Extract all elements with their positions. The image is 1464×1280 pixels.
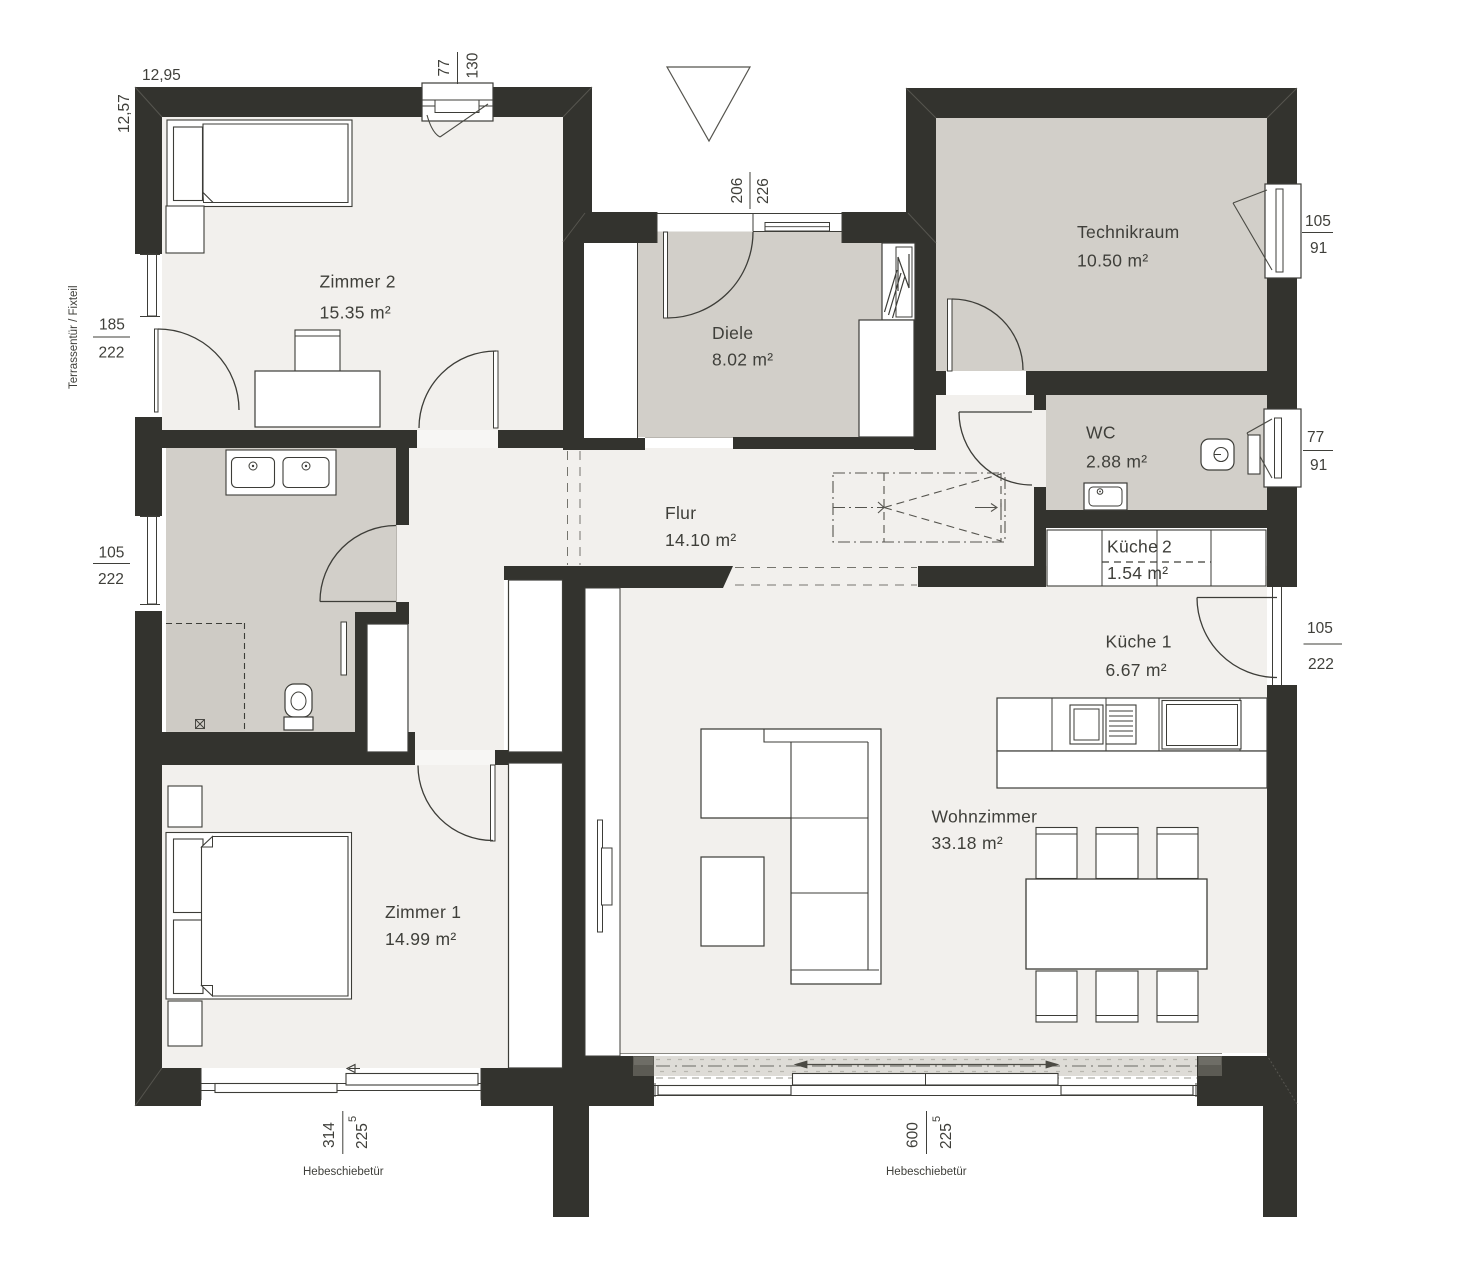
svg-text:130: 130: [465, 52, 482, 78]
svg-text:Hebeschiebetür: Hebeschiebetür: [886, 1166, 967, 1178]
svg-text:Zimmer 1: Zimmer 1: [385, 902, 461, 922]
svg-text:77: 77: [436, 59, 453, 76]
svg-text:5: 5: [347, 1116, 359, 1122]
svg-text:105: 105: [1307, 620, 1333, 637]
svg-text:10.50 m²: 10.50 m²: [1077, 251, 1148, 271]
svg-text:314: 314: [321, 1122, 338, 1148]
svg-text:Technikraum: Technikraum: [1077, 222, 1180, 242]
svg-text:226: 226: [755, 178, 772, 204]
svg-text:1.54 m²: 1.54 m²: [1107, 563, 1168, 583]
svg-text:14.99 m²: 14.99 m²: [385, 929, 456, 949]
svg-text:2: 2: [1162, 536, 1172, 556]
svg-text:Flur: Flur: [665, 503, 696, 523]
svg-text:WC: WC: [1086, 423, 1116, 443]
svg-text:77: 77: [1307, 429, 1324, 446]
svg-text:Diele: Diele: [712, 323, 753, 343]
svg-text:8.02 m²: 8.02 m²: [712, 350, 773, 370]
svg-text:15.35 m²: 15.35 m²: [320, 303, 391, 323]
svg-text:222: 222: [98, 571, 124, 588]
svg-text:Zimmer 2: Zimmer 2: [320, 272, 396, 292]
svg-text:91: 91: [1310, 240, 1327, 257]
svg-text:2.88 m²: 2.88 m²: [1086, 452, 1147, 472]
svg-text:225: 225: [938, 1123, 955, 1149]
svg-text:600: 600: [905, 1122, 922, 1148]
svg-text:222: 222: [99, 345, 125, 362]
svg-text:Terrassentür / Fixteil: Terrassentür / Fixteil: [68, 285, 80, 389]
svg-text:12,57: 12,57: [116, 94, 133, 133]
svg-text:Küche 1: Küche 1: [1106, 631, 1172, 651]
svg-text:Hebeschiebetür: Hebeschiebetür: [303, 1166, 384, 1178]
svg-text:33.18 m²: 33.18 m²: [932, 833, 1003, 853]
svg-text:225: 225: [354, 1123, 371, 1149]
svg-text:206: 206: [729, 178, 746, 204]
svg-text:185: 185: [99, 317, 125, 334]
svg-text:12,95: 12,95: [142, 67, 181, 84]
svg-text:14.10 m²: 14.10 m²: [665, 530, 736, 550]
svg-text:Küche: Küche: [1107, 536, 1158, 556]
svg-text:5: 5: [931, 1116, 943, 1122]
svg-text:105: 105: [1305, 213, 1331, 230]
svg-text:105: 105: [99, 545, 125, 562]
svg-text:6.67 m²: 6.67 m²: [1106, 660, 1167, 680]
svg-text:91: 91: [1310, 457, 1327, 474]
svg-text:Wohnzimmer: Wohnzimmer: [932, 807, 1038, 827]
svg-text:222: 222: [1308, 656, 1334, 673]
